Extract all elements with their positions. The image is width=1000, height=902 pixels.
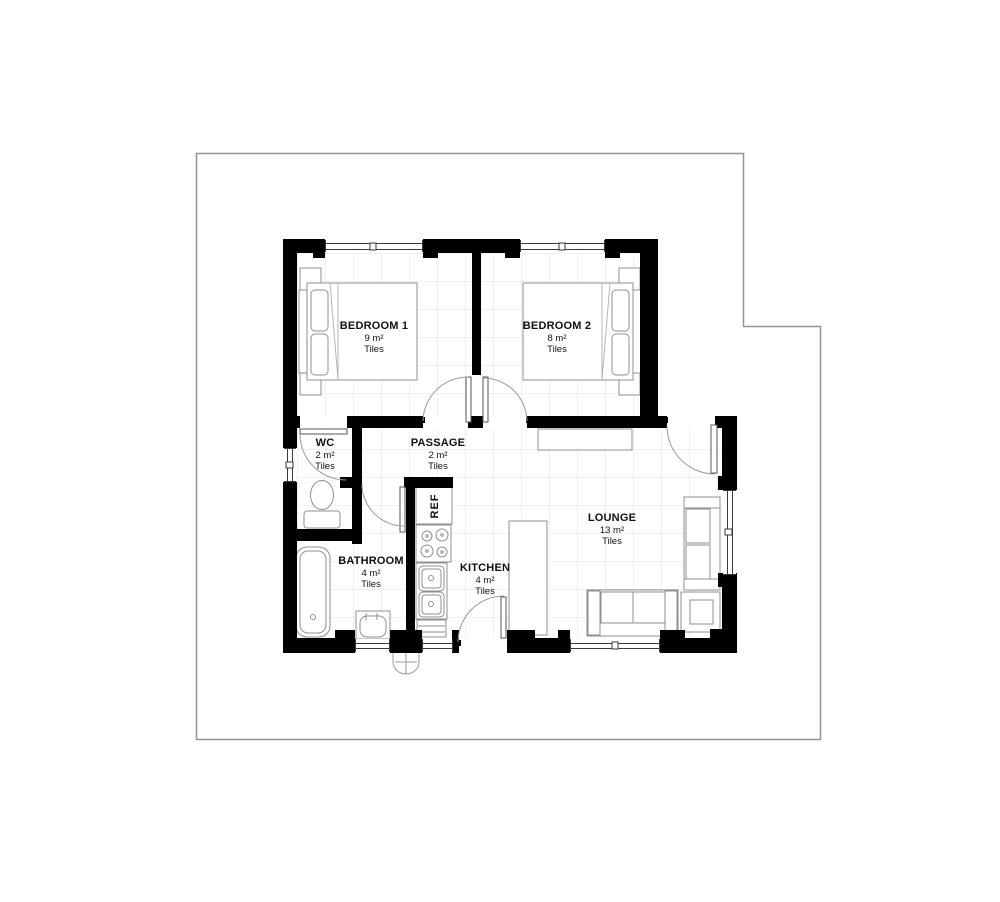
sofa-right (684, 497, 720, 590)
stove (416, 525, 451, 562)
room-floor: Tiles (364, 344, 384, 355)
room-floor: Tiles (428, 461, 448, 472)
room-name: PASSAGE (411, 437, 465, 449)
window-lounge-right (723, 490, 736, 575)
bathtub (296, 547, 330, 637)
label-wc: WC 2 m² Tiles (315, 437, 335, 472)
room-area: 2 m² (429, 450, 448, 461)
window-wc (284, 448, 296, 482)
window-bedroom2 (520, 240, 605, 252)
window-bathroom (355, 639, 390, 652)
fridge-label: REF (429, 494, 441, 519)
room-floor: Tiles (361, 579, 381, 590)
room-floor: Tiles (547, 344, 567, 355)
basin (356, 611, 390, 639)
room-area: 13 m² (600, 525, 624, 536)
room-name: WC (316, 437, 335, 449)
room-area: 4 m² (362, 568, 381, 579)
room-floor: Tiles (602, 536, 622, 547)
room-name: BEDROOM 1 (340, 320, 408, 332)
side-table (681, 592, 720, 632)
room-floor: Tiles (475, 586, 495, 597)
sideboard (538, 429, 632, 450)
room-name: KITCHEN (460, 562, 510, 574)
room-name: LOUNGE (588, 512, 636, 524)
gully-drain (393, 651, 419, 674)
floor-plan-page: BEDROOM 1 9 m² Tiles BEDROOM 2 8 m² Tile… (0, 0, 1000, 902)
room-floor: Tiles (315, 461, 335, 472)
kitchen-counter (509, 521, 547, 635)
room-area: 4 m² (476, 575, 495, 586)
window-kitchen (422, 639, 453, 652)
kitchen-sink (416, 563, 447, 637)
window-bedroom1 (325, 240, 423, 252)
window-lounge-bottom (570, 639, 660, 652)
room-name: BATHROOM (338, 555, 404, 567)
room-area: 2 m² (316, 450, 335, 461)
sofa-bottom (587, 590, 678, 636)
room-area: 8 m² (548, 333, 567, 344)
room-area: 9 m² (365, 333, 384, 344)
room-name: BEDROOM 2 (523, 320, 591, 332)
floor-plan: BEDROOM 1 9 m² Tiles BEDROOM 2 8 m² Tile… (0, 0, 1000, 902)
